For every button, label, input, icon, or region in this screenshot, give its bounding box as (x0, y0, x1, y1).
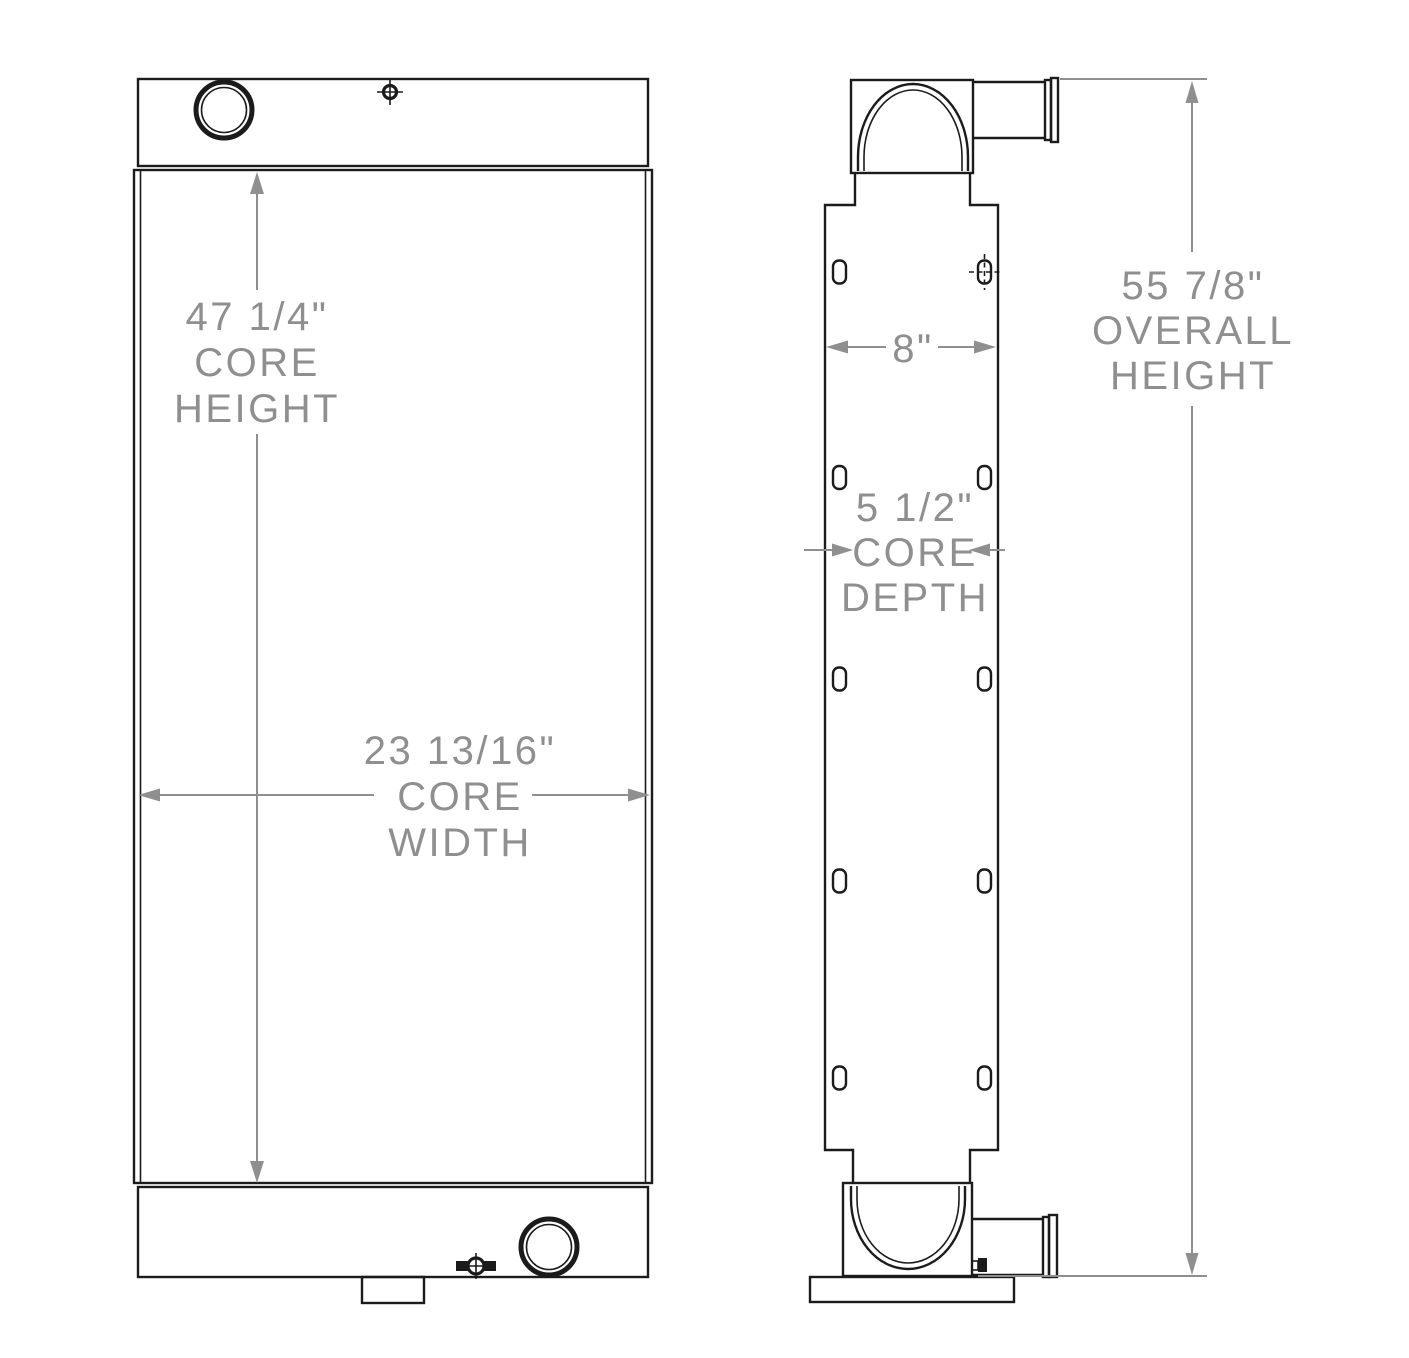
base-plate (810, 1277, 1014, 1302)
mounting-slot (978, 870, 991, 893)
dimension-core-depth: 5 1/2" CORE DEPTH (804, 486, 1005, 620)
mounting-slot (978, 668, 991, 691)
core-height-label-1: CORE (194, 341, 320, 385)
dimension-core-width: 23 13/16" CORE WIDTH (138, 729, 650, 865)
bottom-elbow-arch (851, 1186, 965, 1269)
top-elbow-arch (858, 84, 968, 171)
side-plate-profile (825, 173, 998, 1183)
outlet-inner-ring (527, 1225, 572, 1270)
mounting-slot (833, 668, 846, 691)
overall-height-label-2: HEIGHT (1110, 354, 1276, 398)
overall-height-value: 55 7/8" (1122, 264, 1265, 308)
core-width-label-1: CORE (397, 775, 523, 819)
core-width-value: 23 13/16" (364, 729, 556, 773)
drain-bolt-icon (972, 1258, 987, 1272)
mounting-slots (833, 254, 1000, 1090)
mounting-slot (978, 1067, 991, 1090)
technical-drawing-canvas: 47 1/4" CORE HEIGHT 23 13/16" CORE WIDTH… (0, 0, 1409, 1358)
core-depth-label-2: DEPTH (841, 576, 989, 620)
radiator-drawing: 47 1/4" CORE HEIGHT 23 13/16" CORE WIDTH… (0, 0, 1409, 1358)
drain-petcock-icon (456, 1253, 496, 1279)
top-elbow-arch-inner (864, 90, 962, 171)
side-view (810, 78, 1058, 1302)
dimension-overall-height: 55 7/8" OVERALL HEIGHT (978, 79, 1294, 1276)
filler-neck-inner-ring (202, 88, 247, 133)
front-view (134, 79, 652, 1303)
overall-height-label-1: OVERALL (1092, 309, 1294, 353)
dimension-core-height: 47 1/4" CORE HEIGHT (174, 172, 340, 1183)
core-depth-value: 5 1/2" (856, 486, 974, 530)
extension-lines (978, 79, 1207, 1276)
center-mark-icon (377, 79, 403, 105)
filler-neck-ring (196, 82, 252, 138)
dimension-tank-width: 8" (826, 327, 996, 371)
mounting-slot (833, 466, 846, 489)
bottom-elbow-arch-inner (857, 1186, 959, 1263)
outlet-ring (521, 1219, 577, 1275)
bottom-foot (362, 1277, 424, 1303)
mounting-slot (833, 261, 846, 284)
tank-width-value: 8" (892, 327, 933, 371)
top-hose-outlet (973, 78, 1058, 142)
core-width-label-2: WIDTH (388, 821, 532, 865)
mounting-slot (833, 870, 846, 893)
mounting-slot (978, 466, 991, 489)
core-height-value: 47 1/4" (186, 295, 329, 339)
mounting-slot (833, 1067, 846, 1090)
core-height-label-2: HEIGHT (174, 387, 340, 431)
core-depth-label-1: CORE (852, 531, 978, 575)
